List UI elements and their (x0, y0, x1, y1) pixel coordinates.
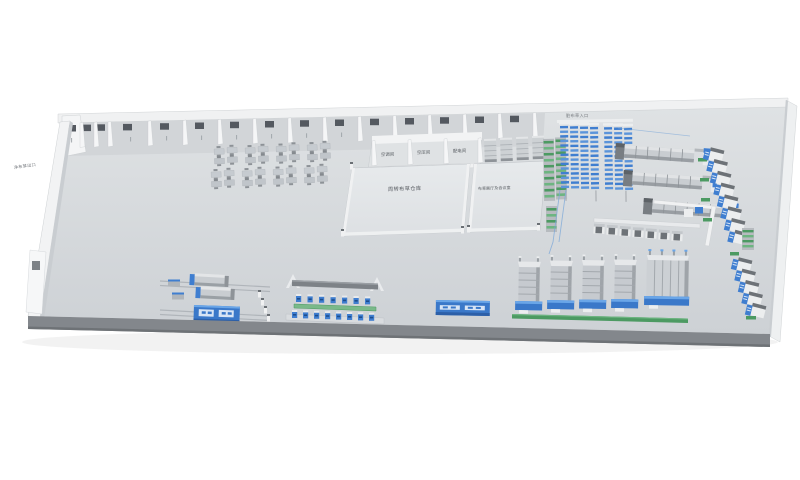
folder-machine (579, 255, 607, 313)
green-pad (700, 178, 709, 182)
workstation (319, 295, 324, 303)
doorway (160, 123, 169, 130)
doorway (510, 116, 519, 123)
storage-rack (500, 138, 513, 162)
tiny-room-label (71, 138, 72, 143)
dryer-cylinder (195, 286, 235, 300)
tiny-room-label (271, 134, 272, 139)
tiny-room-label (201, 136, 202, 141)
linen-cart (172, 293, 184, 300)
workstation (342, 296, 347, 304)
doorway (123, 124, 132, 130)
workstation (308, 294, 313, 302)
clean-linen-exit-label: 净布草出口 (13, 161, 36, 171)
rail-post (261, 298, 264, 306)
green-rack-short (546, 206, 557, 232)
doorway (195, 123, 204, 130)
press-unit (593, 223, 605, 234)
room-corner-post (467, 225, 470, 233)
workstation (296, 294, 301, 302)
workstation (292, 310, 297, 318)
workstation (347, 312, 352, 320)
rail-post (258, 290, 261, 298)
room-corner-post (341, 229, 344, 237)
factory-3d-render: 空调间 空压间 配电间 周转布草仓库 布草展厅及会议室 (0, 0, 800, 480)
left-wall-opening (32, 261, 40, 270)
blue-control-box (695, 207, 703, 214)
press-unit (619, 226, 631, 237)
wide-folder-machine (644, 249, 690, 309)
utility-box (684, 209, 693, 217)
workstation (314, 311, 319, 319)
workstation (325, 311, 330, 319)
folder-machine (515, 256, 543, 314)
blue-spreader-machine (193, 305, 240, 323)
workstation (365, 296, 370, 304)
doorway (335, 120, 344, 127)
storage-rack (484, 139, 497, 163)
workstation (358, 312, 363, 320)
scene-canvas: 空调间 空压间 配电间 周转布草仓库 布草展厅及会议室 (0, 0, 800, 480)
folder-machine (547, 255, 575, 313)
green-pad (703, 218, 712, 222)
workstation (331, 295, 336, 303)
warehouse-room: 周转布草仓库 (341, 162, 470, 237)
room-corner-post (537, 223, 540, 231)
doorway (300, 120, 309, 127)
green-pad (701, 198, 710, 202)
press-unit (658, 229, 670, 240)
dirty-linen-entrance-label: 脏布草入口 (566, 112, 588, 119)
press-unit (606, 225, 618, 236)
workstation (336, 312, 341, 320)
showroom-room: 布草展厅及会议室 (467, 161, 546, 233)
green-rack-column (543, 139, 555, 201)
workstation (303, 310, 308, 318)
tiny-room-label (306, 133, 307, 138)
doorway (475, 117, 484, 124)
doorway (230, 122, 239, 129)
tiny-room-label (341, 133, 342, 138)
dryer-cylinder (189, 273, 229, 287)
doorway (440, 117, 449, 124)
room-corner-post (350, 162, 353, 170)
rail-post (267, 314, 270, 322)
press-unit (632, 227, 644, 238)
workstation (354, 296, 359, 304)
doorway (265, 121, 274, 128)
feeder-machine (436, 300, 490, 316)
storage-rack (532, 136, 545, 160)
tiny-room-label (236, 135, 237, 140)
tiny-room-label (166, 136, 167, 141)
green-pad (746, 316, 756, 320)
tiny-room-label (130, 137, 131, 142)
storage-rack (516, 137, 529, 161)
doorway (370, 119, 379, 126)
rail-post (264, 306, 267, 314)
folder-machine (611, 254, 639, 312)
doorway (405, 118, 414, 125)
green-pad (730, 252, 739, 256)
green-rack-wall (742, 228, 754, 250)
press-unit (671, 231, 683, 242)
linen-cart (168, 280, 180, 287)
room-corner-post (461, 226, 464, 234)
workstation (369, 313, 374, 321)
press-unit (645, 228, 657, 239)
